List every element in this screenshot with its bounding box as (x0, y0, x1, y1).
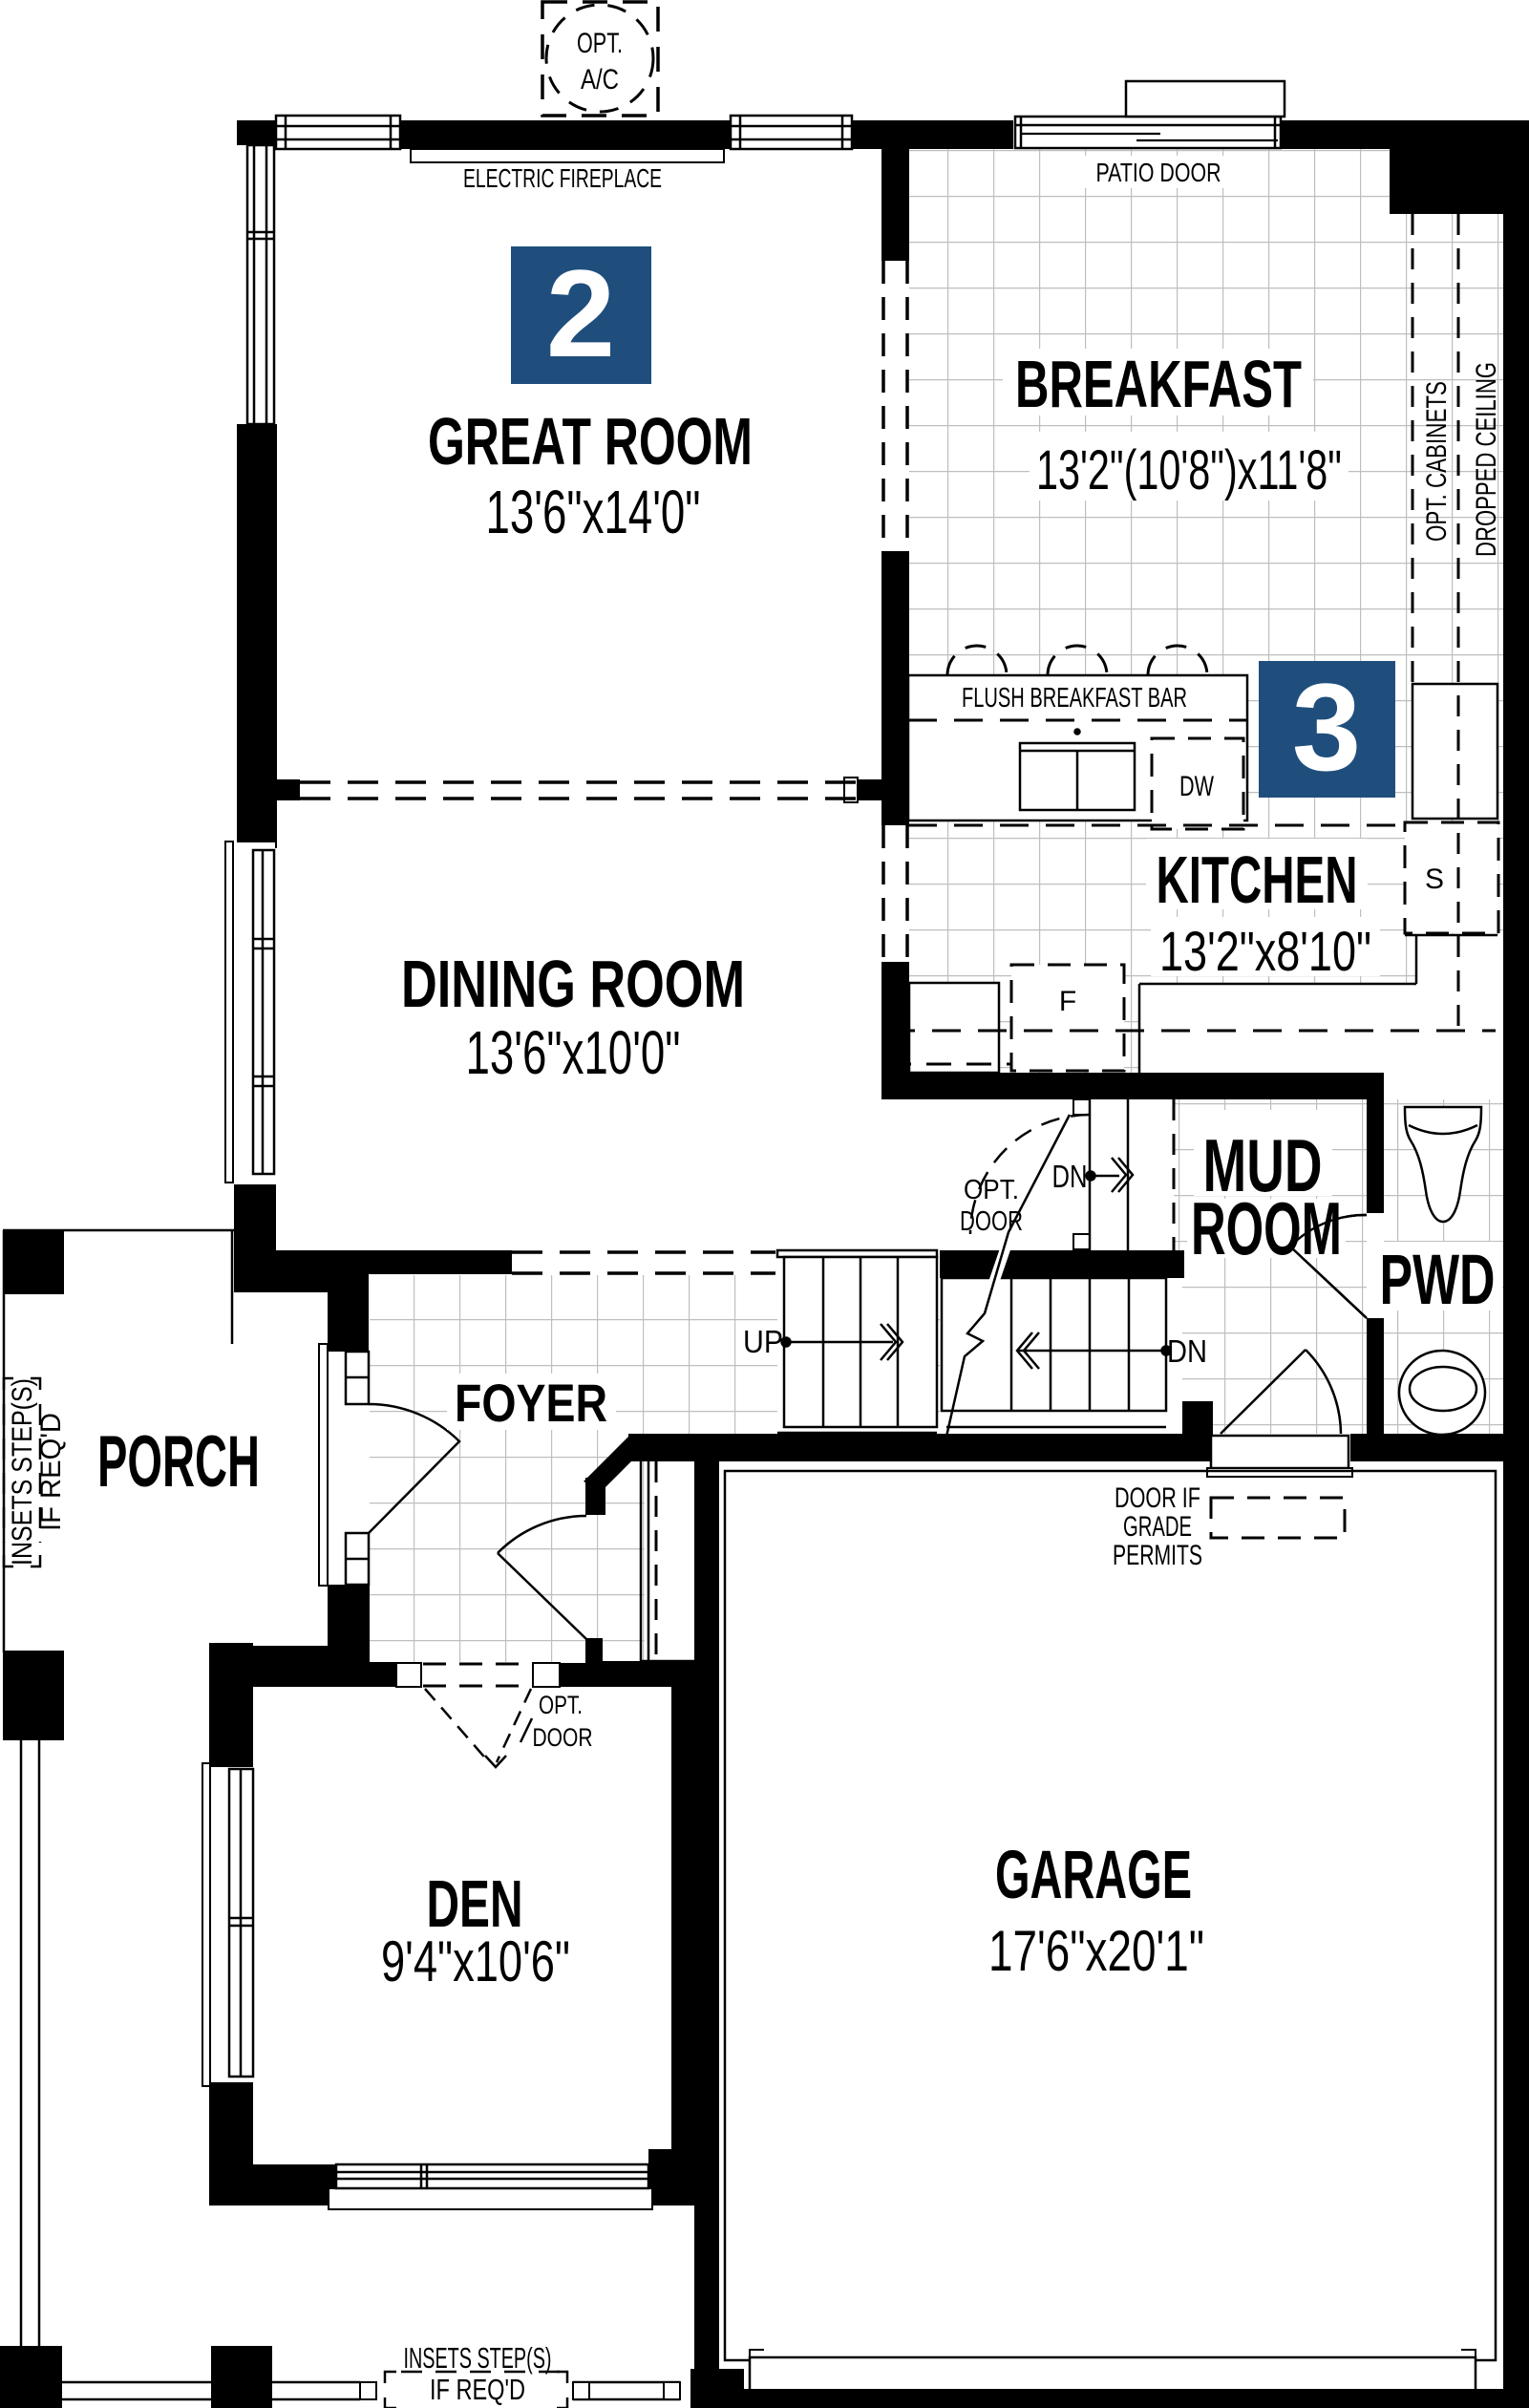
svg-text:DOOR: DOOR (960, 1206, 1023, 1237)
svg-text:PERMITS: PERMITS (1113, 1540, 1202, 1571)
svg-text:17'6"x20'1": 17'6"x20'1" (988, 1919, 1204, 1983)
svg-text:IF REQ'D: IF REQ'D (430, 2373, 525, 2406)
svg-text:2: 2 (546, 244, 615, 383)
svg-text:3: 3 (1292, 657, 1361, 797)
svg-text:PORCH: PORCH (97, 1421, 260, 1502)
svg-text:13'2"x8'10": 13'2"x8'10" (1159, 921, 1371, 983)
svg-text:OPT. CABINETS: OPT. CABINETS (1421, 381, 1453, 542)
svg-text:DOOR: DOOR (533, 1723, 593, 1752)
svg-text:13'6"x10'0": 13'6"x10'0" (466, 1018, 681, 1087)
svg-text:A/C: A/C (581, 64, 619, 96)
svg-text:DOOR IF: DOOR IF (1115, 1482, 1200, 1514)
svg-text:DN: DN (1167, 1333, 1207, 1369)
svg-text:INSETS STEP(S): INSETS STEP(S) (7, 1378, 38, 1566)
svg-text:DN: DN (1052, 1159, 1088, 1194)
svg-text:ROOM: ROOM (1191, 1186, 1342, 1270)
svg-text:DW: DW (1179, 771, 1214, 802)
svg-text:FOYER: FOYER (455, 1373, 607, 1433)
svg-text:INSETS STEP(S): INSETS STEP(S) (404, 2341, 552, 2375)
svg-text:IF REQ'D: IF REQ'D (35, 1413, 67, 1531)
svg-text:DROPPED CEILING: DROPPED CEILING (1471, 362, 1502, 557)
svg-text:OPT.: OPT. (964, 1175, 1019, 1205)
svg-text:PATIO DOOR: PATIO DOOR (1096, 158, 1221, 187)
svg-text:KITCHEN: KITCHEN (1157, 842, 1358, 917)
svg-text:FLUSH BREAKFAST BAR: FLUSH BREAKFAST BAR (962, 683, 1187, 714)
svg-text:UP: UP (743, 1324, 783, 1359)
svg-text:F: F (1059, 986, 1076, 1017)
svg-text:13'2"(10'8")x11'8": 13'2"(10'8")x11'8" (1036, 439, 1342, 501)
svg-text:PWD: PWD (1380, 1240, 1496, 1319)
svg-text:ELECTRIC FIREPLACE: ELECTRIC FIREPLACE (463, 163, 662, 193)
svg-text:DINING ROOM: DINING ROOM (401, 947, 745, 1021)
svg-text:BREAKFAST: BREAKFAST (1015, 347, 1302, 421)
svg-text:13'6"x14'0": 13'6"x14'0" (486, 478, 701, 546)
svg-text:GRADE: GRADE (1123, 1511, 1192, 1543)
svg-text:9'4"x10'6": 9'4"x10'6" (381, 1929, 570, 1993)
svg-text:GREAT ROOM: GREAT ROOM (428, 404, 753, 479)
svg-text:OPT.: OPT. (577, 28, 623, 59)
svg-text:OPT.: OPT. (539, 1691, 583, 1719)
svg-text:GARAGE: GARAGE (995, 1838, 1192, 1913)
svg-text:S: S (1425, 863, 1444, 895)
